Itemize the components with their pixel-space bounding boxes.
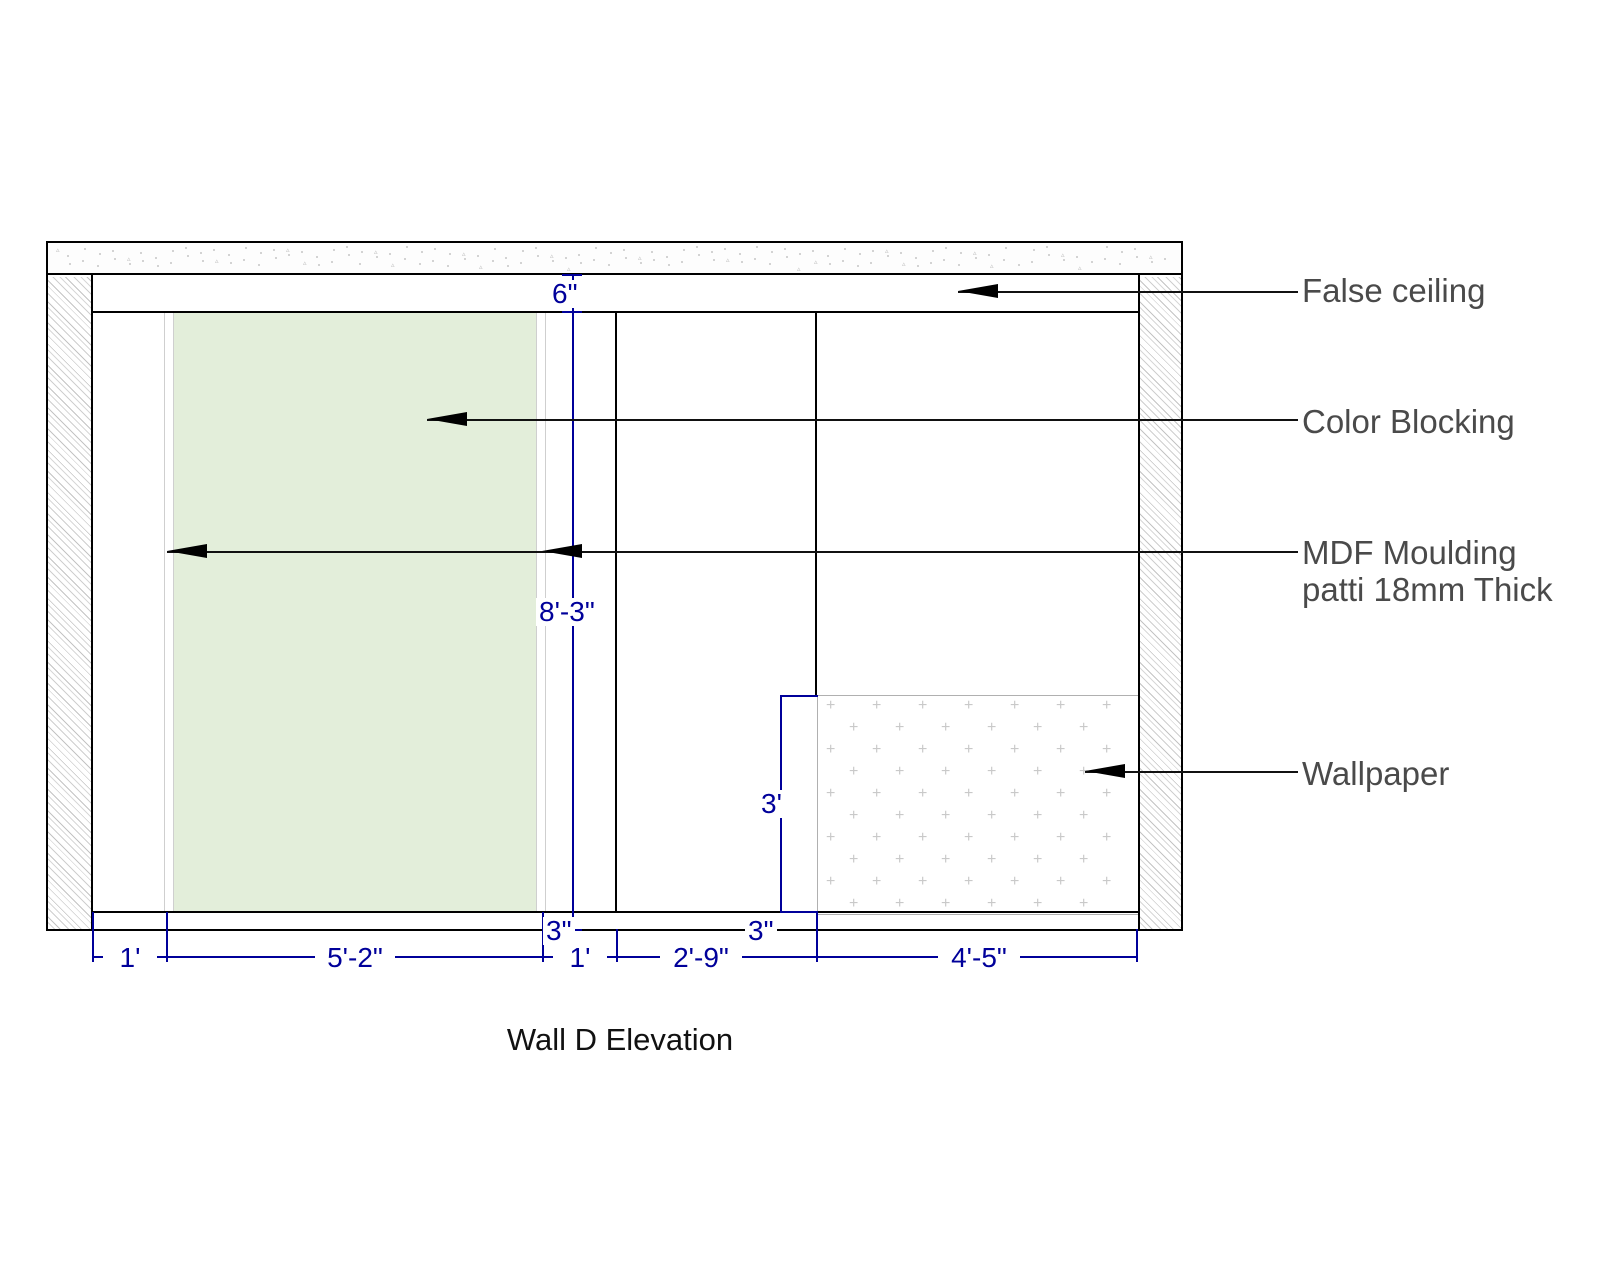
dim-ext-divider: [616, 929, 618, 962]
outer-right-wall-line: [1181, 275, 1183, 931]
wallpaper-dim-jog-bottom: [780, 911, 818, 913]
mdf-moulding-arrow-right-icon: [542, 544, 582, 558]
wallpaper-arrow-icon: [1085, 764, 1125, 778]
false-ceiling-label: False ceiling: [1302, 272, 1485, 309]
dim-label-left-margin: 1': [103, 944, 157, 972]
dim-label-middle-span: 2'-9": [660, 944, 742, 972]
drawing-title: Wall D Elevation: [480, 1022, 760, 1058]
dim-label-skirting-left: 3": [543, 917, 575, 945]
color-blocking-leader-line: [427, 419, 1298, 421]
panel-divider-line-2: [815, 313, 817, 697]
dim-ext-wallpaper-left: [816, 911, 818, 962]
color-blocking-arrow-icon: [427, 412, 467, 426]
dim-tick-ceiling-top: [562, 274, 582, 276]
dim-tick-false-ceiling: [562, 311, 582, 313]
dim-label-false-ceiling-drop: 6": [549, 280, 581, 308]
inner-right-wall-line: [1138, 275, 1140, 929]
mdf-moulding-arrow-left-icon: [167, 544, 207, 558]
dim-ext-panel-left: [166, 912, 168, 962]
dim-label-wallpaper-height: 3': [758, 790, 785, 818]
mdf-strip-left: [164, 313, 174, 911]
skirting-line: [93, 911, 1138, 913]
dim-ext-right-wall: [1136, 929, 1138, 962]
mdf-moulding-leader-line: [167, 551, 1298, 553]
false-ceiling-arrow-icon: [958, 284, 998, 298]
wall-d-elevation-drawing: ▵▵▵▵▵▵▵▵▵▵▵▵▵▵▵▵▵▵▵▵▵▵ +++++++++++++++++…: [0, 0, 1600, 1280]
right-wall-hatch: [1140, 277, 1181, 929]
dim-label-wall-height: 8'-3": [536, 598, 598, 626]
color-blocking-label: Color Blocking: [1302, 403, 1515, 440]
mdf-moulding-label: MDF Moulding patti 18mm Thick: [1302, 534, 1553, 608]
dim-label-panel-width: 5'-2": [315, 944, 395, 972]
dim-ext-left-wall: [92, 912, 94, 962]
dim-label-wallpaper-width: 4'-5": [938, 944, 1020, 972]
floor-line: [46, 929, 1183, 931]
wallpaper-panel: ++++++++++++++++++++++++++++++++++++++++…: [817, 695, 1140, 915]
mdf-moulding-label-line1: MDF Moulding: [1302, 534, 1553, 571]
ceiling-slab-band: ▵▵▵▵▵▵▵▵▵▵▵▵▵▵▵▵▵▵▵▵▵▵: [46, 241, 1183, 275]
panel-divider-line-1: [615, 313, 617, 911]
inner-left-wall-line: [91, 275, 93, 929]
wallpaper-dim-jog-top: [780, 695, 818, 697]
wallpaper-label: Wallpaper: [1302, 755, 1449, 792]
dim-label-skirting-right: 3": [745, 917, 777, 945]
color-blocking-panel: [172, 313, 536, 911]
dim-label-right-of-panel: 1': [553, 944, 607, 972]
outer-left-wall-line: [46, 275, 48, 931]
left-wall-hatch: [48, 277, 91, 929]
false-ceiling-leader-line: [958, 291, 1298, 293]
mdf-moulding-label-line2: patti 18mm Thick: [1302, 571, 1553, 608]
